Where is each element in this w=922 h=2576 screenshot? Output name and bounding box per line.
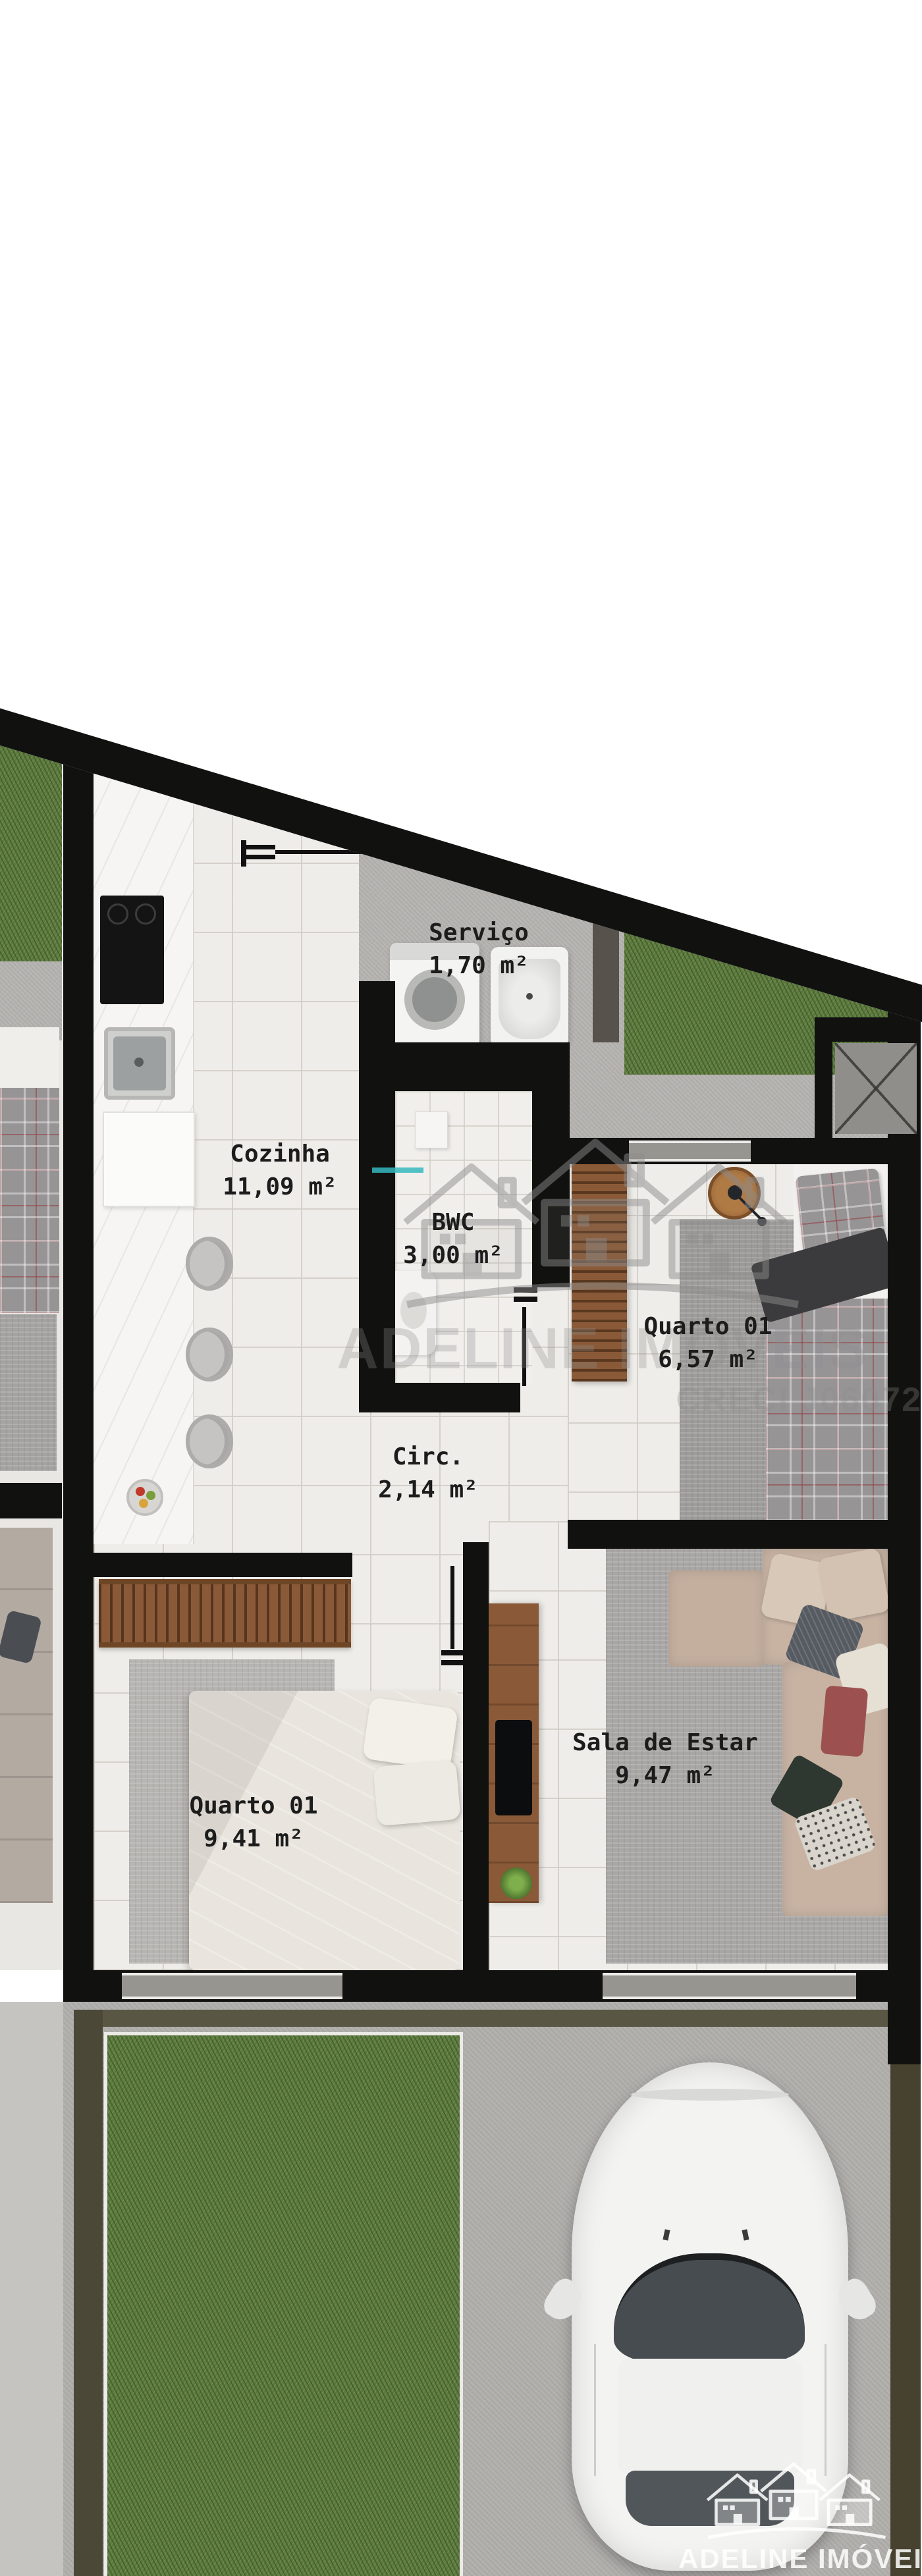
room-label-cozinha: Cozinha 11,09 m² (181, 1138, 379, 1204)
quarto-door-hinge (441, 1660, 465, 1665)
room-area: 1,70 m² (380, 950, 578, 982)
room-area: 9,41 m² (155, 1823, 352, 1856)
servico-window-symbol (246, 845, 275, 849)
room-name: Quarto 01 (155, 1790, 352, 1823)
neighbour-bed (0, 1088, 59, 1313)
neighbour-rug (0, 1314, 57, 1471)
watermark-license: CRECI J06072 (283, 1380, 922, 1420)
room-area: 3,00 m² (354, 1239, 552, 1272)
headboard-panel (99, 1579, 351, 1648)
wall-servico-bwc (359, 1042, 558, 1091)
car-grille-shadow (631, 2089, 789, 2101)
kitchen-sink-drain (134, 1058, 144, 1067)
front-fence-strip (74, 2010, 888, 2027)
room-label-sala: Sala de Estar 9,47 m² (527, 1727, 803, 1792)
room-name: Circ. (329, 1441, 527, 1474)
wall-quarto-sala (463, 1542, 489, 1970)
sofa-pillow-red (821, 1685, 869, 1757)
room-area: 9,47 m² (527, 1759, 803, 1792)
window-quarto-esquerda (122, 1973, 342, 1999)
room-name: BWC (354, 1206, 552, 1239)
front-yard-grass (104, 2032, 463, 2576)
quarto-door-hinge (441, 1650, 465, 1655)
wall-quarto-esquerda-top (94, 1553, 352, 1577)
bed-left-pillow (362, 1697, 458, 1771)
room-label-quarto-esquerda: Quarto 01 9,41 m² (155, 1790, 352, 1856)
neighbour-bed-sheet (0, 1027, 59, 1093)
room-area: 11,09 m² (181, 1171, 379, 1204)
room-name: Cozinha (181, 1138, 379, 1171)
neighbour-wall (0, 1483, 62, 1518)
counter-stool (186, 1414, 233, 1468)
room-label-quarto-direita: Quarto 01 6,57 m² (609, 1310, 807, 1376)
room-name: Quarto 01 (609, 1310, 807, 1343)
bed-left-pillow (373, 1760, 460, 1827)
left-fence (74, 2010, 103, 2576)
watermark-company: ADELINE IMÓVEIS (678, 2543, 915, 2575)
room-name: Sala de Estar (527, 1727, 803, 1759)
plant (501, 1867, 532, 1899)
quarto-door-leaf (450, 1566, 454, 1649)
sidewalk (0, 2002, 63, 2576)
watermark-company: ADELINE IMÓVEIS (283, 1317, 922, 1380)
room-label-bwc: BWC 3,00 m² (354, 1206, 552, 1272)
counter-stool (186, 1328, 233, 1382)
servico-window-symbol (246, 855, 275, 859)
houses-icon (685, 2454, 909, 2543)
room-label-circulacao: Circ. 2,14 m² (329, 1441, 527, 1507)
cooktop-burner (107, 903, 128, 925)
room-area: 2,14 m² (329, 1474, 527, 1507)
room-name: Serviço (380, 917, 578, 950)
floor-plan: Serviço 1,70 m² Cozinha 11,09 m² BWC 3,0… (0, 0, 922, 2576)
watermark-corner: ADELINE IMÓVEIS CRECI J06072 (678, 2454, 915, 2576)
room-label-servico: Serviço 1,70 m² (380, 917, 578, 982)
laundry-tub-drain (526, 993, 533, 1000)
window-sala (603, 1973, 856, 1999)
fruit-bowl-fruits (136, 1487, 145, 1496)
fruit-bowl (126, 1479, 163, 1516)
cooktop-burner (135, 903, 156, 925)
servico-window-symbol (241, 840, 246, 867)
room-area: 6,57 m² (609, 1343, 807, 1376)
car-door-seam-left (594, 2344, 596, 2476)
wall-left (63, 721, 94, 2002)
wall-sala-top (568, 1520, 888, 1549)
counter-stool (186, 1237, 233, 1291)
neighbour-sofa (0, 1528, 53, 1903)
sofa-chaise (668, 1570, 765, 1667)
